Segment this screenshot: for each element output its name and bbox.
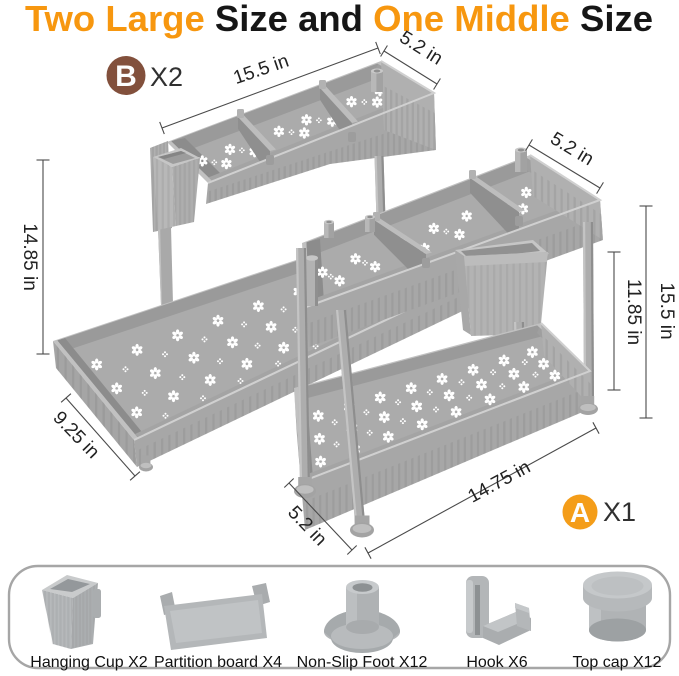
svg-text:14.85 in: 14.85 in <box>19 223 40 291</box>
svg-text:X2: X2 <box>150 62 183 92</box>
svg-text:B: B <box>115 60 137 93</box>
svg-text:14.75 in: 14.75 in <box>465 457 534 508</box>
svg-text:Non-Slip Foot X12: Non-Slip Foot X12 <box>297 654 428 671</box>
svg-text:11.85 in: 11.85 in <box>623 279 644 345</box>
svg-text:Top cap X12: Top cap X12 <box>573 654 662 671</box>
svg-text:A: A <box>570 497 590 528</box>
svg-text:5.2 in: 5.2 in <box>547 128 598 170</box>
svg-text:15.5 in: 15.5 in <box>656 282 677 339</box>
svg-text:X1: X1 <box>603 497 636 527</box>
svg-text:Two Large Size and One Middle: Two Large Size and One Middle Size <box>25 0 653 39</box>
svg-text:Hook X6: Hook X6 <box>466 654 527 671</box>
svg-text:Partition board X4: Partition board X4 <box>154 654 282 671</box>
svg-text:Hanging Cup X2: Hanging Cup X2 <box>30 654 148 671</box>
